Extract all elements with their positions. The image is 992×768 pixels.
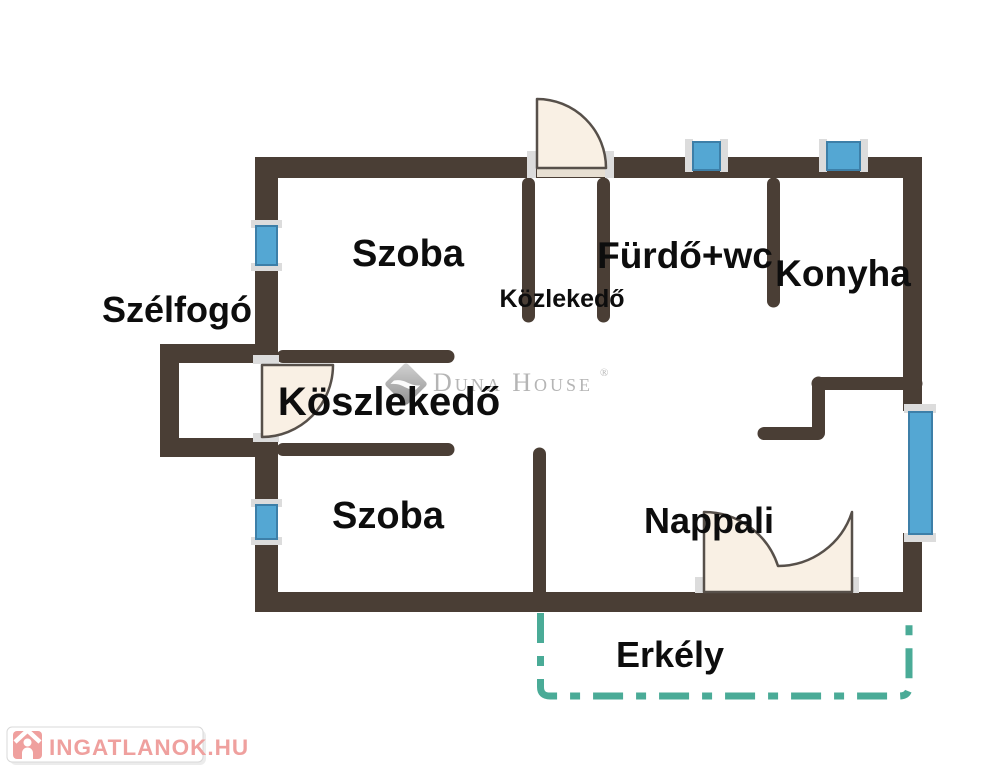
window-sill: [860, 139, 868, 172]
room-label-szoba-top: Szoba: [352, 233, 465, 275]
window-right-large: [909, 412, 932, 534]
window-sill: [819, 139, 827, 172]
exterior-wall-right-lower: [903, 533, 922, 612]
windows: [251, 139, 936, 545]
window-top-bath: [693, 142, 720, 170]
house-icon: [13, 731, 42, 760]
floor-plan-canvas: Duna House ®: [0, 0, 992, 768]
room-label-nappali: Nappali: [644, 500, 774, 541]
room-label-erkely: Erkély: [616, 634, 724, 675]
balcony-door-hinge-left: [695, 577, 704, 593]
exterior-wall-bottom: [255, 592, 922, 612]
window-left-upper: [256, 226, 277, 265]
registered-mark: ®: [600, 367, 611, 379]
window-sill: [685, 139, 693, 172]
window-sill: [720, 139, 728, 172]
room-label-kozlekedo-small: Közlekedő: [499, 285, 624, 313]
room-label-szoba-bottom: Szoba: [332, 495, 445, 537]
room-label-konyha: Konyha: [775, 253, 911, 294]
room-label-szelfogo: Szélfogó: [102, 289, 252, 330]
room-label-koszlekedo: Köszlekedő: [278, 380, 500, 424]
entrance-door: [537, 99, 606, 168]
logo-text: INGATLANOK.HU: [49, 735, 249, 760]
window-top-kitchen: [827, 142, 860, 170]
window-left-lower: [256, 505, 277, 539]
floor-plan: Duna House ®: [0, 0, 992, 768]
ingatlanok-logo: INGATLANOK.HU: [7, 727, 249, 765]
entrance-jamb-left: [527, 151, 536, 178]
balcony-outline: [541, 613, 910, 696]
room-label-furdo-wc: Fürdő+wc: [597, 235, 773, 276]
vestibule-jamb-top: [253, 355, 279, 364]
